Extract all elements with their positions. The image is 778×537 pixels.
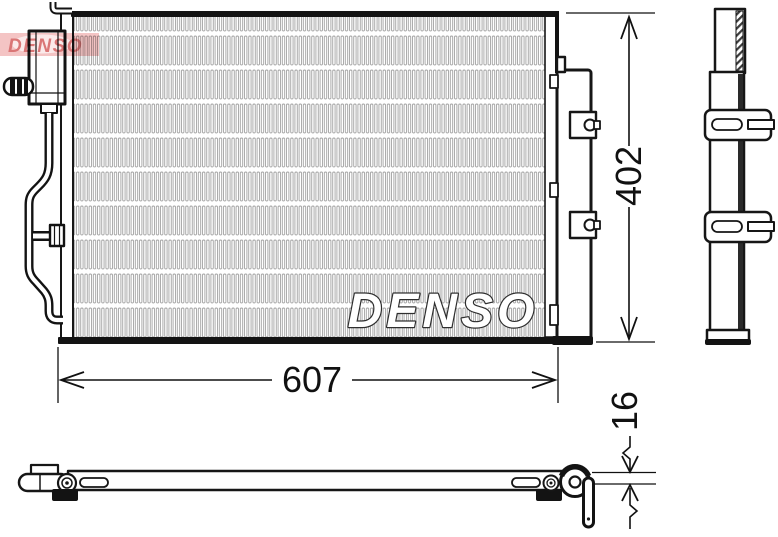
dimension-width: 607 <box>58 347 558 403</box>
side-top-hatch <box>736 11 743 71</box>
dimension-thickness: 16 <box>592 391 656 529</box>
tank-mount-lug-upper <box>570 112 600 138</box>
brand-watermark-large-text: DENSO <box>348 285 539 338</box>
dim-thickness-label: 16 <box>604 391 645 431</box>
receiver-tank <box>550 57 600 345</box>
pipe-coupler <box>50 225 64 246</box>
side-bracket-upper <box>705 110 774 140</box>
s-bend-pipe <box>29 113 63 320</box>
top-view <box>19 465 594 527</box>
front-view: DENSO DENSO <box>0 2 600 345</box>
brand-watermark-small-text: DENSO <box>8 36 83 57</box>
core-bottom-bar <box>58 337 558 344</box>
condenser-drawing-page: DENSO DENSO 607 402 <box>0 0 778 537</box>
dim-width-label: 607 <box>282 359 342 400</box>
thin-slot-right <box>512 478 540 487</box>
thin-slot-left <box>80 478 108 487</box>
dim-height-label: 402 <box>608 146 649 206</box>
side-view <box>705 9 774 345</box>
core-top-bar <box>71 11 559 17</box>
side-bracket-lower <box>705 212 774 242</box>
threaded-fitting <box>4 78 33 95</box>
thin-body <box>68 471 562 490</box>
tank-mount-lug-lower <box>570 212 600 238</box>
technical-drawing: DENSO DENSO 607 402 <box>0 0 778 537</box>
brand-watermark-band: DENSO <box>0 33 99 57</box>
